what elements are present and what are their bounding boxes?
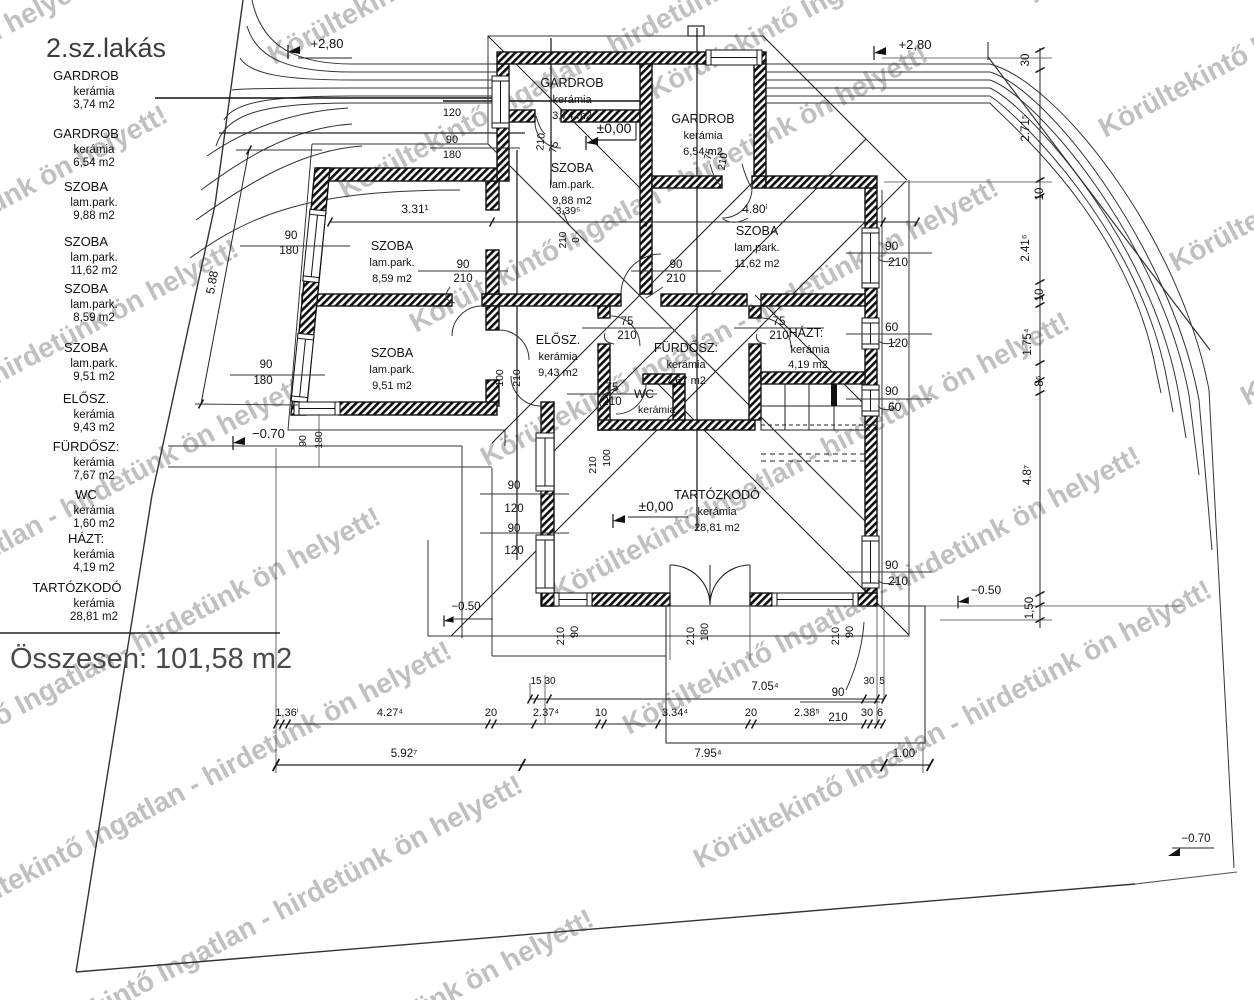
svg-text:90: 90	[569, 626, 581, 638]
svg-text:3,74 m2: 3,74 m2	[73, 99, 115, 111]
svg-text:SZOBA: SZOBA	[64, 234, 108, 249]
svg-text:lam.park.: lam.park.	[369, 364, 414, 376]
svg-text:GARDROB: GARDROB	[53, 68, 119, 83]
svg-text:kerámia: kerámia	[552, 94, 592, 106]
svg-text:kerámia: kerámia	[74, 457, 116, 469]
svg-text:90: 90	[285, 230, 298, 242]
svg-text:20: 20	[745, 707, 757, 719]
svg-text:kerámia: kerámia	[74, 86, 116, 98]
svg-text:kerámia: kerámia	[683, 130, 723, 142]
svg-text:WC: WC	[75, 487, 97, 502]
svg-text:6,54 m2: 6,54 m2	[73, 157, 115, 169]
svg-text:75: 75	[773, 316, 786, 328]
svg-text:HÁZT:: HÁZT:	[68, 531, 104, 546]
svg-text:3.34⁴: 3.34⁴	[662, 707, 688, 719]
svg-text:kerámia: kerámia	[74, 505, 116, 517]
svg-text:210: 210	[511, 369, 523, 387]
svg-text:60: 60	[888, 400, 902, 414]
svg-text:9,43 m2: 9,43 m2	[73, 422, 115, 434]
svg-text:90: 90	[670, 259, 683, 271]
svg-text:5.92⁷: 5.92⁷	[391, 748, 418, 760]
svg-text:−0.50: −0.50	[971, 583, 1002, 597]
svg-text:210: 210	[453, 273, 472, 285]
svg-text:90: 90	[885, 239, 899, 253]
svg-text:lam.park.: lam.park.	[70, 299, 117, 311]
svg-text:−0.50: −0.50	[451, 601, 480, 613]
svg-text:120: 120	[443, 107, 461, 119]
svg-text:75: 75	[621, 316, 634, 328]
svg-text:kerámia: kerámia	[666, 359, 706, 371]
svg-text:210: 210	[888, 574, 908, 588]
svg-text:28,81 m2: 28,81 m2	[70, 611, 118, 623]
svg-text:lam.park.: lam.park.	[70, 358, 117, 370]
svg-text:2.sz.lakás: 2.sz.lakás	[46, 33, 166, 63]
svg-text:210: 210	[888, 255, 908, 269]
svg-text:90: 90	[832, 687, 845, 699]
svg-text:±0,00: ±0,00	[597, 120, 632, 136]
svg-text:kerámia: kerámia	[638, 404, 676, 416]
svg-text:lam.park.: lam.park.	[70, 252, 117, 264]
svg-text:210: 210	[602, 396, 621, 408]
svg-text:90: 90	[508, 480, 521, 492]
svg-text:8,59 m2: 8,59 m2	[73, 312, 115, 324]
svg-text:Összesen: 101,58 m2: Összesen: 101,58 m2	[10, 643, 292, 675]
svg-text:7,67 m2: 7,67 m2	[73, 470, 115, 482]
svg-text:1,50: 1,50	[1024, 597, 1036, 619]
svg-text:WC: WC	[634, 387, 654, 401]
svg-text:120: 120	[504, 503, 523, 515]
svg-text:30: 30	[1020, 54, 1032, 67]
svg-text:100: 100	[601, 449, 613, 467]
svg-text:90: 90	[297, 435, 309, 447]
svg-text:FÜRDŐSZ:: FÜRDŐSZ:	[53, 439, 119, 454]
svg-text:ELŐSZ.: ELŐSZ.	[63, 391, 109, 406]
svg-text:FÜRDŐSZ:: FÜRDŐSZ:	[654, 340, 718, 355]
svg-text:3.31¹: 3.31¹	[401, 202, 428, 216]
svg-text:3,74 m2: 3,74 m2	[552, 110, 592, 122]
svg-text:210: 210	[685, 627, 697, 645]
svg-text:kerámia: kerámia	[74, 598, 116, 610]
svg-text:210: 210	[830, 627, 842, 645]
svg-text:8,59 m2: 8,59 m2	[372, 273, 412, 285]
svg-text:210: 210	[534, 132, 547, 151]
svg-text:7.05⁴: 7.05⁴	[751, 681, 778, 693]
svg-text:−0.70: −0.70	[1181, 833, 1210, 845]
svg-text:0: 0	[571, 237, 582, 243]
svg-text:kerámia: kerámia	[790, 344, 830, 356]
svg-text:GARDROB: GARDROB	[540, 76, 603, 90]
svg-text:4,19 m2: 4,19 m2	[73, 562, 115, 574]
svg-text:5: 5	[879, 676, 885, 687]
svg-text:90: 90	[446, 134, 458, 146]
svg-text:9,88 m2: 9,88 m2	[73, 210, 115, 222]
svg-text:+2,80: +2,80	[311, 36, 344, 51]
svg-text:10: 10	[595, 707, 607, 719]
svg-text:4.27⁴: 4.27⁴	[377, 707, 403, 719]
svg-text:lam.park.: lam.park.	[734, 242, 779, 254]
svg-text:210: 210	[769, 330, 788, 342]
svg-text:kerámia: kerámia	[74, 549, 116, 561]
svg-text:1.75⁴: 1.75⁴	[1022, 328, 1034, 355]
svg-text:1.00ⁱ: 1.00ⁱ	[893, 747, 917, 760]
svg-text:11,62 m2: 11,62 m2	[70, 265, 117, 277]
svg-text:6: 6	[877, 707, 883, 719]
svg-text:SZOBA: SZOBA	[371, 346, 414, 360]
svg-text:2.71⁵: 2.71⁵	[1020, 114, 1032, 141]
svg-text:lam.park.: lam.park.	[549, 179, 594, 191]
svg-text:30: 30	[861, 707, 873, 719]
svg-text:100: 100	[494, 369, 506, 387]
svg-text:28,81 m2: 28,81 m2	[694, 522, 740, 534]
svg-text:+2,80: +2,80	[899, 37, 932, 52]
svg-text:1,36ⁱ: 1,36ⁱ	[275, 707, 298, 719]
svg-text:90: 90	[885, 384, 899, 398]
svg-text:1,60 m2: 1,60 m2	[73, 518, 115, 530]
svg-text:2.41⁶: 2.41⁶	[1020, 234, 1032, 261]
svg-text:SZOBA: SZOBA	[64, 281, 108, 296]
svg-text:GARDROB: GARDROB	[671, 112, 734, 126]
svg-text:4.8⁷: 4.8⁷	[1022, 465, 1034, 485]
svg-text:9,51 m2: 9,51 m2	[372, 380, 412, 392]
svg-text:180: 180	[279, 245, 298, 257]
svg-text:2.37⁴: 2.37⁴	[533, 707, 559, 719]
svg-text:TARTÓZKODÓ: TARTÓZKODÓ	[674, 487, 760, 502]
svg-text:SZOBA: SZOBA	[64, 340, 108, 355]
svg-text:210: 210	[558, 231, 569, 248]
svg-text:210: 210	[555, 627, 567, 645]
svg-text:30: 30	[544, 676, 556, 687]
svg-text:120: 120	[504, 545, 523, 557]
svg-text:210: 210	[828, 712, 847, 724]
svg-text:210: 210	[617, 330, 636, 342]
svg-text:TARTÓZKODÓ: TARTÓZKODÓ	[32, 580, 121, 595]
svg-text:11,62 m2: 11,62 m2	[734, 258, 779, 270]
svg-text:HÁZT:: HÁZT:	[789, 325, 824, 340]
svg-text:SZOBA: SZOBA	[551, 161, 594, 175]
svg-text:9,51 m2: 9,51 m2	[73, 371, 115, 383]
svg-text:10: 10	[1034, 188, 1046, 201]
svg-text:kerámia: kerámia	[538, 351, 578, 363]
svg-text:180: 180	[443, 149, 461, 161]
svg-text:90: 90	[457, 259, 470, 271]
svg-text:8⁶: 8⁶	[1034, 375, 1046, 386]
svg-text:GARDROB: GARDROB	[53, 126, 119, 141]
svg-text:lam.park.: lam.park.	[369, 257, 414, 269]
svg-text:210: 210	[666, 273, 685, 285]
svg-text:60: 60	[885, 320, 899, 334]
svg-text:180: 180	[699, 623, 711, 641]
svg-text:6,54 m2: 6,54 m2	[683, 146, 723, 158]
svg-text:kerámia: kerámia	[74, 409, 116, 421]
svg-text:10: 10	[1034, 289, 1046, 302]
svg-text:−0.70: −0.70	[252, 426, 285, 441]
svg-text:4.80ⁱ: 4.80ⁱ	[742, 202, 768, 216]
svg-text:9,88 m2: 9,88 m2	[552, 195, 592, 207]
svg-text:2.38⁵: 2.38⁵	[794, 707, 820, 719]
svg-text:SZOBA: SZOBA	[371, 239, 414, 253]
svg-text:180: 180	[253, 375, 272, 387]
svg-text:7,67 m2: 7,67 m2	[666, 375, 706, 387]
svg-text:15: 15	[530, 676, 542, 687]
svg-text:90: 90	[885, 558, 899, 572]
svg-text:±0,00: ±0,00	[639, 498, 674, 514]
svg-text:SZOBA: SZOBA	[64, 179, 108, 194]
svg-text:90: 90	[260, 359, 273, 371]
svg-text:ELŐSZ.: ELŐSZ.	[536, 332, 580, 347]
svg-text:7.95⁴: 7.95⁴	[694, 748, 721, 760]
svg-text:SZOBA: SZOBA	[736, 224, 779, 238]
svg-text:9,43 m2: 9,43 m2	[538, 367, 578, 379]
svg-text:30: 30	[863, 676, 875, 687]
svg-text:20: 20	[485, 707, 497, 719]
svg-text:90: 90	[844, 626, 856, 638]
svg-text:kerámia: kerámia	[697, 506, 737, 518]
svg-text:kerámia: kerámia	[74, 144, 116, 156]
svg-text:210: 210	[587, 456, 599, 474]
svg-text:4,19 m2: 4,19 m2	[788, 359, 828, 371]
svg-text:lam.park.: lam.park.	[70, 197, 117, 209]
